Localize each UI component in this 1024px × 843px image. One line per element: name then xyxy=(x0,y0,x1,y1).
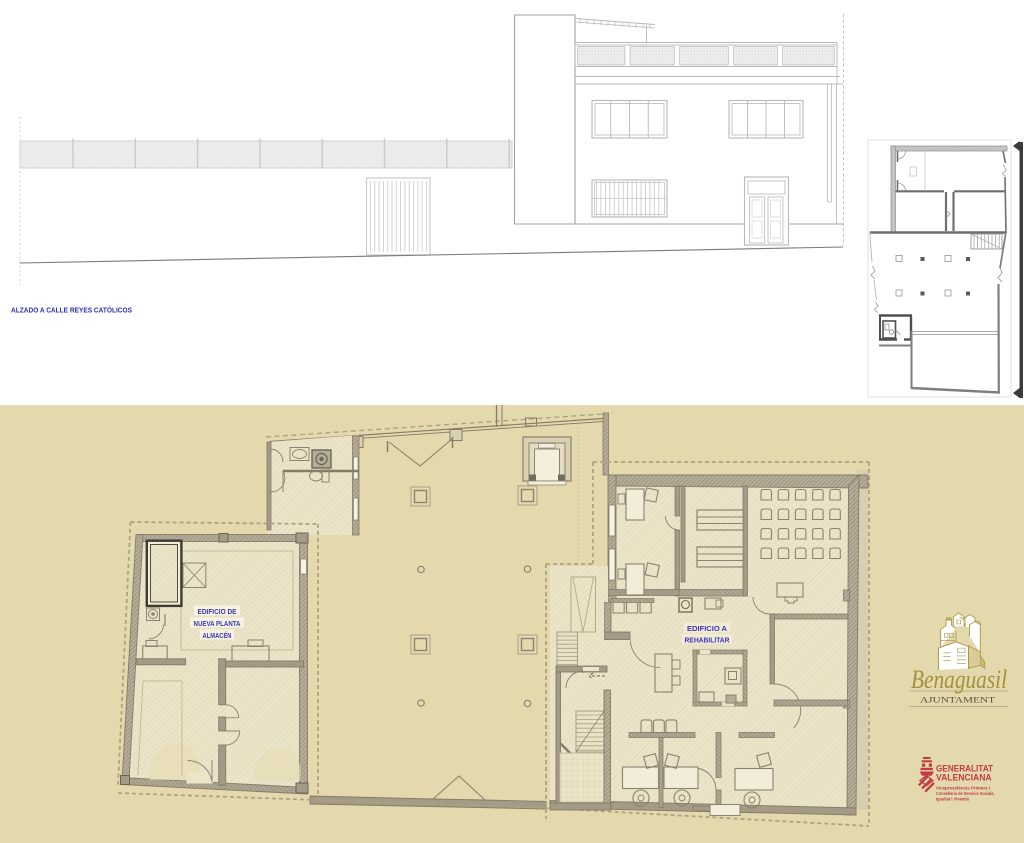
svg-text:ALMACÉN: ALMACÉN xyxy=(203,631,232,640)
svg-text:Vicepresidència Primera i: Vicepresidència Primera i xyxy=(936,786,990,792)
svg-text:Benaguasil: Benaguasil xyxy=(911,665,1007,694)
svg-text:AJUNTAMENT: AJUNTAMENT xyxy=(920,695,996,705)
svg-text:Igualtat i Vivenda: Igualtat i Vivenda xyxy=(936,797,969,803)
svg-text:NUEVA PLANTA: NUEVA PLANTA xyxy=(194,619,241,628)
svg-text:EDIFICIO DE: EDIFICIO DE xyxy=(198,607,237,616)
svg-text:Conselleria de Servicis Social: Conselleria de Servicis Socials, xyxy=(936,791,995,797)
svg-text:EDIFICIO A: EDIFICIO A xyxy=(687,624,727,633)
svg-text:ALZADO A CALLE REYES CATÓLICOS: ALZADO A CALLE REYES CATÓLICOS xyxy=(11,306,132,315)
svg-text:VALENCIANA: VALENCIANA xyxy=(936,773,992,784)
svg-text:REHABILITAR: REHABILITAR xyxy=(685,636,730,645)
